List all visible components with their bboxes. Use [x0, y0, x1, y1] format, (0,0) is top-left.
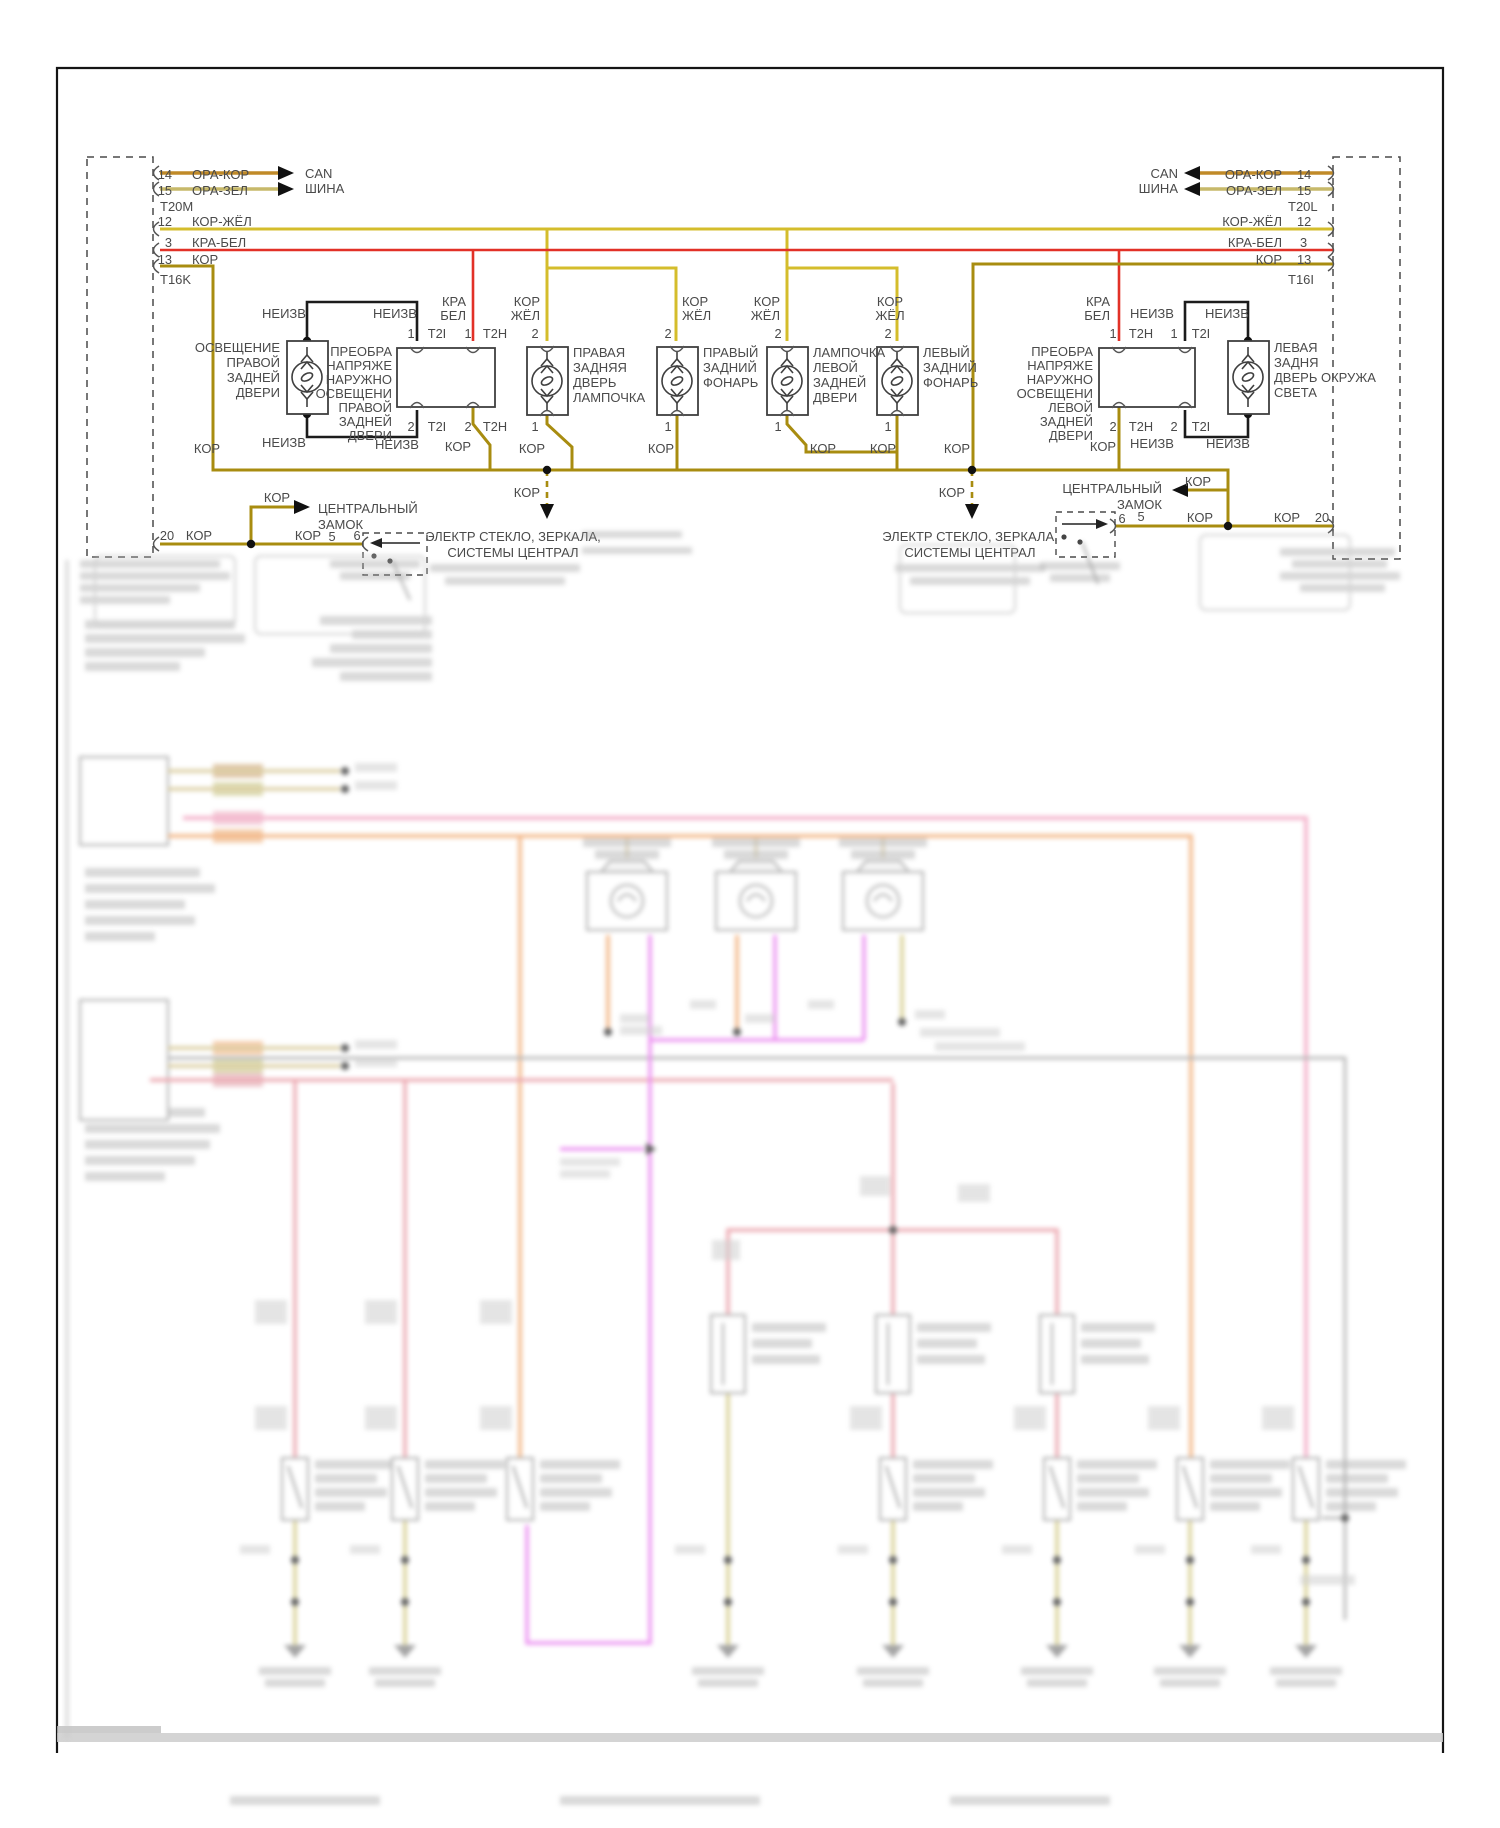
blurred-wire-chips: [213, 764, 263, 1087]
can-label: ШИНА: [1139, 181, 1179, 196]
blurred-lamp: [839, 838, 927, 930]
wire-label: КОР: [1187, 510, 1213, 525]
right-connector-housing: [1333, 157, 1400, 559]
blurred-ground: [857, 1645, 929, 1687]
component-label: ПРЕОБРА: [330, 344, 392, 359]
wire-label: КОР-ЖЁЛ: [1222, 214, 1282, 229]
blurred-lamp: [583, 838, 671, 930]
wire-label: КОР: [870, 441, 896, 456]
wire-label: КОР: [682, 294, 708, 309]
pin-number: 15: [158, 183, 172, 198]
pin-connector: T2I: [428, 326, 447, 341]
pin-number: 14: [1297, 167, 1311, 182]
wire-label: КОР: [1185, 474, 1211, 489]
pin-number: 6: [1118, 511, 1125, 526]
wire-label: КОР: [1090, 439, 1116, 454]
component-label: ДВЕРИ: [813, 390, 857, 405]
blurred-wire-magenta: [527, 935, 864, 1643]
pin-connector: T2I: [1192, 419, 1211, 434]
to-system-arrow-icon: [540, 504, 554, 519]
blurred-lamp: [712, 838, 800, 930]
blurred-connector-box: [80, 757, 168, 845]
pin-number: 1: [1170, 326, 1177, 341]
pin-number: 2: [1109, 419, 1116, 434]
wire-label: КРА-БЕЛ: [1228, 235, 1282, 250]
wire-label: КОР: [648, 441, 674, 456]
junction-dot: [247, 540, 255, 548]
wire-kor-dashed: [547, 470, 972, 504]
wire-label: КРА: [1086, 294, 1110, 309]
component-label: ПРАВОЙ: [338, 400, 392, 415]
wire-label: КОР: [264, 490, 290, 505]
wire-label: ЖЁЛ: [751, 308, 780, 323]
component-label: НАПРЯЖЕ: [326, 358, 392, 373]
blurred-ground: [1021, 1645, 1093, 1687]
wire-label: ЖЁЛ: [511, 308, 540, 323]
wire-label: КОР: [810, 441, 836, 456]
pin-number: 5: [1137, 509, 1144, 524]
pin-number: 2: [884, 326, 891, 341]
component-label: ДВЕРИ: [1049, 428, 1093, 443]
pin-number: 20: [160, 528, 174, 543]
wire-label: НЕИЗВ: [375, 437, 419, 452]
wire-label: КРА: [442, 294, 466, 309]
blurred-relay: [876, 1315, 991, 1393]
wire-label: КОР: [1256, 252, 1282, 267]
component-label: ОСВЕЩЕНИ: [316, 386, 392, 401]
wire-label: КОР: [192, 252, 218, 267]
converter-left-door-box: [1099, 348, 1195, 407]
can-arrow-icon: [1184, 182, 1200, 196]
wire-label: КОР-ЖЁЛ: [192, 214, 252, 229]
blurred-ground: [369, 1645, 441, 1687]
wire-label: КОР: [944, 441, 970, 456]
pin-number: 14: [158, 167, 172, 182]
junction-dot: [968, 466, 976, 474]
wire-label: КОР: [514, 485, 540, 500]
blurred-switch: [392, 1458, 505, 1520]
component-label: ФОНАРЬ: [923, 375, 978, 390]
wire-label: НЕИЗВ: [1130, 306, 1174, 321]
component-label: НАРУЖНО: [1027, 372, 1093, 387]
pin-number: 2: [664, 326, 671, 341]
component-label: НАРУЖНО: [326, 372, 392, 387]
footer-smudge: [950, 1796, 1110, 1805]
pin-connector: T2H: [483, 326, 507, 341]
system-ref-label: ЭЛЕКТР СТЕКЛО, ЗЕРКАЛА,: [882, 529, 1057, 544]
page-bottom-tab: [57, 1726, 161, 1733]
pin-connector: T2I: [1192, 326, 1211, 341]
central-lock-label: ЗАМОК: [318, 517, 363, 532]
can-arrow-icon: [1184, 166, 1200, 180]
wire-label: КОР: [877, 294, 903, 309]
component-label: ЛЕВОЙ: [1048, 400, 1093, 415]
left-connector-labels: 14 ОРА-КОР 15 ОРА-ЗЕЛ T20M 12 КОР-ЖЁЛ 3 …: [158, 166, 345, 287]
wire-label: НЕИЗВ: [262, 306, 306, 321]
wire-label: БЕЛ: [440, 308, 466, 323]
blurred-ground: [1270, 1645, 1342, 1687]
can-label: CAN: [305, 166, 332, 181]
pin-number: 3: [165, 235, 172, 250]
component-label: ЛАМПОЧКА: [813, 345, 885, 360]
pin-connector: T2H: [1129, 419, 1153, 434]
pin-number: 1: [664, 419, 671, 434]
pin-number: 13: [1297, 252, 1311, 267]
connector-id: T16K: [160, 272, 191, 287]
wire-label: НЕИЗВ: [262, 435, 306, 450]
connector-id: T20L: [1288, 199, 1318, 214]
page-bottom-rule: [57, 1733, 1443, 1742]
wire-label: КРА-БЕЛ: [192, 235, 246, 250]
pin-number: 2: [774, 326, 781, 341]
blurred-relay: [1040, 1315, 1155, 1393]
can-label: ШИНА: [305, 181, 345, 196]
component-label: ПРАВЫЙ: [703, 345, 758, 360]
to-system-arrow-icon: [965, 504, 979, 519]
component-label: ЛЕВОЙ: [813, 360, 858, 375]
wire-label: ОРА-ЗЕЛ: [1226, 183, 1282, 198]
bottom-row-labels: 20 КОР КОР 5 6 КОР ЦЕНТРАЛЬНЫЙ ЗАМОК КОР…: [160, 474, 1329, 560]
wire-label: КОР: [514, 294, 540, 309]
wire-label: КОР: [1274, 510, 1300, 525]
pin-connector: T2H: [483, 419, 507, 434]
central-lock-arrow-icon: [294, 500, 310, 514]
pin-number: 13: [158, 252, 172, 267]
wire-label: КОР: [754, 294, 780, 309]
wire-label: ЖЁЛ: [682, 308, 711, 323]
blurred-switch: [282, 1458, 395, 1520]
component-label: ОСВЕЩЕНИЕ: [195, 340, 280, 355]
wire-label: БЕЛ: [1084, 308, 1110, 323]
blurred-ground: [259, 1645, 331, 1687]
wire-label: ОРА-КОР: [192, 167, 249, 182]
central-lock-label: ЦЕНТРАЛЬНЫЙ: [1062, 481, 1162, 496]
component-label: ОСВЕЩЕНИ: [1017, 386, 1093, 401]
blurred-lower-schematic: [67, 531, 1406, 1805]
connector-id: T16I: [1288, 272, 1314, 287]
component-label: ЗАДНЕЙ: [339, 414, 392, 429]
connector-id: T20M: [160, 199, 193, 214]
pin-number: 1: [407, 326, 414, 341]
blurred-wire-orange-bus: [168, 836, 1191, 1458]
wire-label: НЕИЗВ: [1206, 436, 1250, 451]
pin-number: 1: [774, 419, 781, 434]
top-schematic: 14 ОРА-КОР 15 ОРА-ЗЕЛ T20M 12 КОР-ЖЁЛ 3 …: [87, 157, 1400, 575]
wire-label: КОР: [939, 485, 965, 500]
component-label: ЗАДНЕЙ: [1040, 414, 1093, 429]
switch-arrow-icon: [370, 538, 382, 548]
pin-number: 20: [1315, 510, 1329, 525]
wire-label: КОР: [194, 441, 220, 456]
component-label: ЗАДНЯ: [1274, 355, 1319, 370]
component-label: ЛЕВАЯ: [1274, 340, 1318, 355]
wire-label: ОРА-КОР: [1225, 167, 1282, 182]
pin-number: 3: [1300, 235, 1307, 250]
blurred-wire-red-network: [150, 1080, 1057, 1458]
component-label: ПРАВАЯ: [573, 345, 625, 360]
blurred-ground: [692, 1645, 764, 1687]
wire-label: НЕИЗВ: [1130, 436, 1174, 451]
footer-smudge: [230, 1796, 380, 1805]
pin-number: 2: [464, 419, 471, 434]
wire-label: КОР: [519, 441, 545, 456]
component-label: ДВЕРЬ ОКРУЖА: [1274, 370, 1376, 385]
central-lock-label: ЦЕНТРАЛЬНЫЙ: [318, 501, 418, 516]
junction-dot: [543, 466, 551, 474]
wire-label: ЖЁЛ: [875, 308, 904, 323]
blurred-switch: [507, 1458, 620, 1520]
component-label: ЗАДНЕЙ: [227, 370, 280, 385]
pin-connector: T2I: [428, 419, 447, 434]
wiring-diagram-page: 14 ОРА-КОР 15 ОРА-ЗЕЛ T20M 12 КОР-ЖЁЛ 3 …: [0, 0, 1500, 1828]
diagram-canvas: 14 ОРА-КОР 15 ОРА-ЗЕЛ T20M 12 КОР-ЖЁЛ 3 …: [0, 0, 1500, 1828]
pin-number: 15: [1297, 183, 1311, 198]
blurred-switch: [1044, 1458, 1157, 1520]
wire-label: ОРА-ЗЕЛ: [192, 183, 248, 198]
component-label: ЗАДНИЙ: [703, 360, 757, 375]
wire-label: КОР: [186, 528, 212, 543]
pin-number: 1: [531, 419, 538, 434]
pin-number: 1: [464, 326, 471, 341]
wire-label: КОР: [445, 439, 471, 454]
component-label: ПРАВОЙ: [226, 355, 280, 370]
blurred-ground: [1154, 1645, 1226, 1687]
component-label: ФОНАРЬ: [703, 375, 758, 390]
wire-label: НЕИЗВ: [373, 306, 417, 321]
can-arrow-icon: [278, 182, 294, 196]
can-label: CAN: [1151, 166, 1178, 181]
pin-number: 12: [158, 214, 172, 229]
blurred-switch: [880, 1458, 993, 1520]
switch-arrow-icon: [1096, 519, 1108, 529]
blurred-connector-box: [80, 1000, 168, 1120]
blurred-relay: [711, 1315, 826, 1393]
pin-number: 2: [407, 419, 414, 434]
system-ref-label: СИСТЕМЫ ЦЕНТРАЛ: [447, 545, 578, 560]
component-label: ДВЕРИ: [236, 385, 280, 400]
pin-number: 2: [1170, 419, 1177, 434]
can-arrow-icon: [278, 166, 294, 180]
junction-dot: [1224, 522, 1232, 530]
pin-number: 12: [1297, 214, 1311, 229]
blurred-ground-wires: [295, 1393, 1306, 1645]
component-label: ПРЕОБРА: [1031, 344, 1093, 359]
footer-smudge: [560, 1796, 760, 1805]
component-label: ДВЕРЬ: [573, 375, 616, 390]
blurred-switch: [1293, 1458, 1406, 1520]
component-label: ЛАМПОЧКА: [573, 390, 645, 405]
pin-number: 1: [1109, 326, 1116, 341]
wire-kor-zhel: [160, 229, 1333, 341]
component-label: ЗАДНЕЙ: [813, 375, 866, 390]
pin-connector: T2H: [1129, 326, 1153, 341]
wire-label: НЕИЗВ: [1205, 306, 1249, 321]
left-connector-housing: [87, 157, 153, 557]
component-label: СВЕТА: [1274, 385, 1317, 400]
converter-right-door-box: [397, 348, 495, 407]
component-label: ЛЕВЫЙ: [923, 345, 970, 360]
right-connector-labels: ОРА-КОР 14 ОРА-ЗЕЛ 15 T20L КОР-ЖЁЛ 12 КР…: [1139, 166, 1318, 287]
pin-number: 2: [531, 326, 538, 341]
component-label: ЗАДНИЙ: [923, 360, 977, 375]
pin-number: 1: [884, 419, 891, 434]
blurred-switch: [1177, 1458, 1290, 1520]
component-label: НАПРЯЖЕ: [1027, 358, 1093, 373]
component-label: ЗАДНЯЯ: [573, 360, 627, 375]
